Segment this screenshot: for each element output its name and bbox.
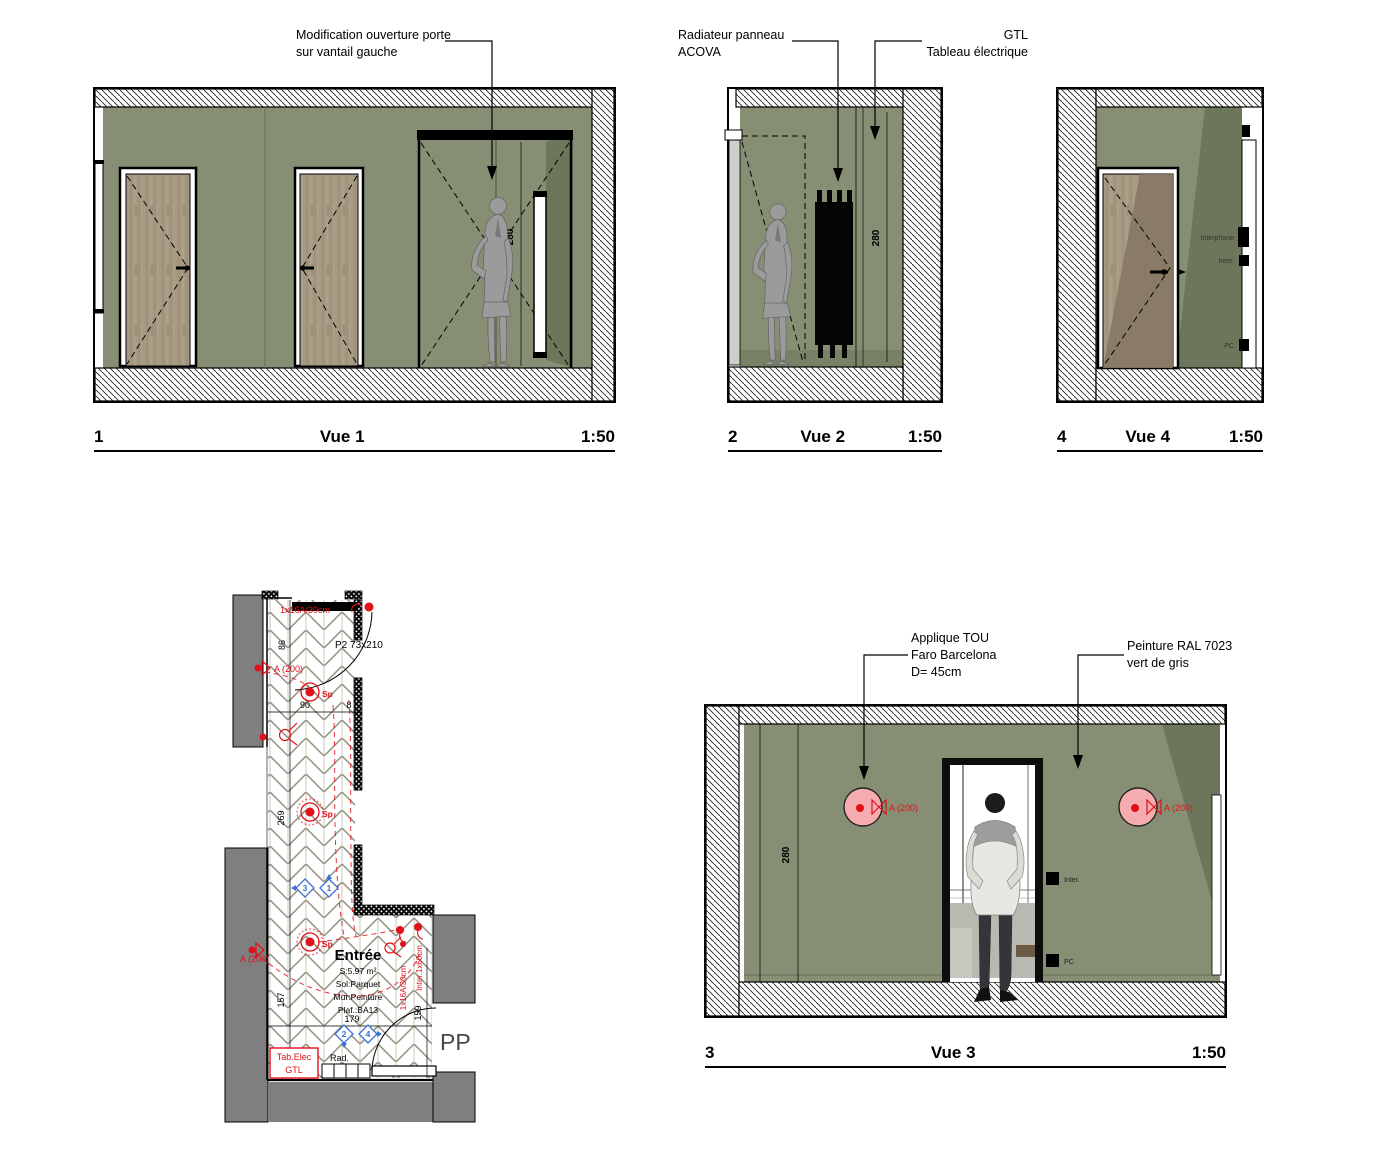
vue3-dim-280: 280 — [781, 846, 792, 863]
vue4-label-inter: Inter. — [1218, 258, 1234, 265]
vue2-hatch-right — [903, 89, 941, 401]
vue3-applique-label-right: A (200) — [1164, 803, 1193, 813]
vue3-inter-box — [1046, 872, 1059, 885]
vue3-annotation-applique: Applique TOU Faro Barcelona D= 45cm — [911, 630, 996, 680]
vue3-number: 3 — [705, 1043, 714, 1063]
plan-applique-label-1: A (200) — [274, 664, 303, 674]
vue4-number: 4 — [1057, 427, 1066, 447]
vue2-annotation-gtl: GTL Tableau électrique — [888, 27, 1028, 61]
vue1-door-2 — [295, 168, 363, 366]
plan-wall-left-lower — [225, 848, 268, 1122]
vue2-radiator — [815, 190, 853, 358]
vue2-titlebar: 2 Vue 2 1:50 — [728, 424, 942, 452]
plan-marker-1: 1 — [327, 883, 332, 893]
vue2-wall-notch — [725, 130, 742, 140]
vue4-title: Vue 4 — [1125, 427, 1170, 447]
plan-rad-label: Rad. — [330, 1053, 349, 1063]
vue1-scale: 1:50 — [581, 427, 615, 447]
vue1-titlebar: 1 Vue 1 1:50 — [94, 424, 615, 452]
vue2-annotation-radiator: Radiateur panneau ACOVA — [678, 27, 784, 61]
vue2-title: Vue 2 — [800, 427, 845, 447]
plan-socket-right-label: 1x16A/30cm — [399, 965, 408, 1010]
plan-stipple-top-a — [262, 591, 278, 599]
vue4-door — [1098, 168, 1186, 368]
vue4-elevation: Interphone Inter. PC — [1057, 88, 1263, 402]
vue1-left-jamb-cap-top — [94, 160, 104, 164]
vue2-wall-return — [729, 140, 740, 365]
vue2-scale: 1:50 — [908, 427, 942, 447]
vue4-inter-box — [1239, 255, 1249, 266]
plan-stipple-room-top — [354, 905, 434, 915]
plan-stipple-top-b — [345, 591, 362, 599]
vue4-hatch-left — [1058, 89, 1096, 401]
plan-applique-label-2: A (200) — [240, 954, 269, 964]
plan-inter-right-label: Inter.1x60cm — [415, 945, 424, 991]
plan-room-wall: Mur:Peinture — [334, 992, 383, 1002]
vue1-hatch-right — [592, 89, 614, 401]
plan-dim-86: 86 — [277, 640, 287, 650]
plan-wall-right-upper — [433, 915, 475, 1003]
plan-door-p2-label: P2 73x210 — [335, 640, 383, 651]
vue3-label-pc: PC — [1064, 959, 1074, 966]
vue3-hatch-top — [739, 706, 1225, 724]
vue4-interphone-box — [1238, 227, 1249, 247]
vue1-title: Vue 1 — [320, 427, 365, 447]
plan-dim-159: 159 — [413, 1005, 423, 1020]
vue2-dim-280: 280 — [871, 229, 882, 246]
vue2-elevation: 280 — [725, 41, 942, 402]
plan-door-pp-leaf — [372, 1066, 436, 1076]
plan-stipple-right-c — [354, 845, 362, 905]
vue3-doorway — [942, 758, 1043, 1002]
drawing-layer: 280 280 — [0, 0, 1394, 1165]
plan-spot-label-2: Sp — [322, 809, 333, 819]
vue2-number: 2 — [728, 427, 737, 447]
vue1-left-jamb-cap-bottom — [94, 309, 104, 313]
plan-marker-4: 4 — [366, 1029, 371, 1039]
vue3-label-inter: Inter. — [1064, 877, 1080, 884]
vue4-side-opening — [1242, 140, 1256, 368]
plan-room-name: Entrée — [335, 947, 382, 964]
plan-tab-elec: Tab.Elec GTL — [270, 1048, 318, 1078]
vue2-hatch-bottom — [729, 367, 903, 401]
vue3-scale: 1:50 — [1192, 1043, 1226, 1063]
vue3-titlebar: 3 Vue 3 1:50 — [705, 1040, 1226, 1068]
vue1-annotation: Modification ouverture porte sur vantail… — [296, 27, 451, 61]
vue4-pc-box — [1239, 339, 1249, 351]
plan-tab-elec-line2: GTL — [285, 1065, 303, 1075]
plan-room-area: S:5.97 m² — [340, 966, 377, 976]
plan-marker-3: 3 — [303, 883, 308, 893]
vue3-annotation-paint: Peinture RAL 7023 vert de gris — [1127, 638, 1232, 672]
plan-pp-label: PP — [440, 1029, 471, 1055]
plan-room-floor: Sol:Parquet — [336, 979, 381, 989]
vue4-titlebar: 4 Vue 4 1:50 — [1057, 424, 1263, 452]
vue1-elevation: 280 — [94, 41, 615, 402]
plan-dim-269: 269 — [276, 810, 286, 825]
plan-dim-157: 157 — [276, 992, 286, 1007]
plan-room-ceiling: Plaf.:BA13 — [338, 1005, 378, 1015]
vue4-hatch-bottom — [1096, 368, 1262, 401]
vue1-shadow-wedge — [546, 133, 573, 368]
plan-tab-elec-line1: Tab.Elec — [277, 1052, 312, 1062]
vue3-pc-box — [1046, 954, 1059, 967]
floor-plan: 86 269 157 90 8 179 159 P2 73x210 1x16A/… — [225, 591, 475, 1122]
vue1-hatch-top — [95, 89, 614, 107]
plan-wall-right-lower — [433, 1072, 475, 1122]
vue3-hatch-left — [706, 706, 739, 1016]
vue3-applique-label-left: A (200) — [889, 803, 918, 813]
vue1-door-1 — [120, 168, 196, 366]
plan-dim-179: 179 — [344, 1014, 359, 1024]
vue1-left-jamb — [95, 163, 103, 313]
vue3-side-return — [1212, 795, 1221, 975]
vue1-number: 1 — [94, 427, 103, 447]
vue3-elevation: 280 A (200) A (200) In — [705, 655, 1226, 1017]
plan-marker-2: 2 — [342, 1029, 347, 1039]
plan-spot-label-1: Sp — [322, 689, 333, 699]
vue1-hatch-bottom — [95, 368, 614, 401]
architectural-sheet: 280 280 — [0, 0, 1394, 1165]
vue4-side-notch — [1242, 125, 1250, 137]
vue3-title: Vue 3 — [931, 1043, 976, 1063]
vue1-door-leaf-edge — [534, 193, 546, 356]
vue4-scale: 1:50 — [1229, 427, 1263, 447]
vue4-label-interphone: Interphone — [1201, 235, 1235, 242]
plan-socket-top-label: 1x16A/30cm — [280, 605, 330, 615]
vue4-label-pc: PC — [1224, 343, 1234, 350]
vue4-hatch-top — [1096, 89, 1262, 107]
plan-stipple-right-b — [354, 678, 362, 790]
